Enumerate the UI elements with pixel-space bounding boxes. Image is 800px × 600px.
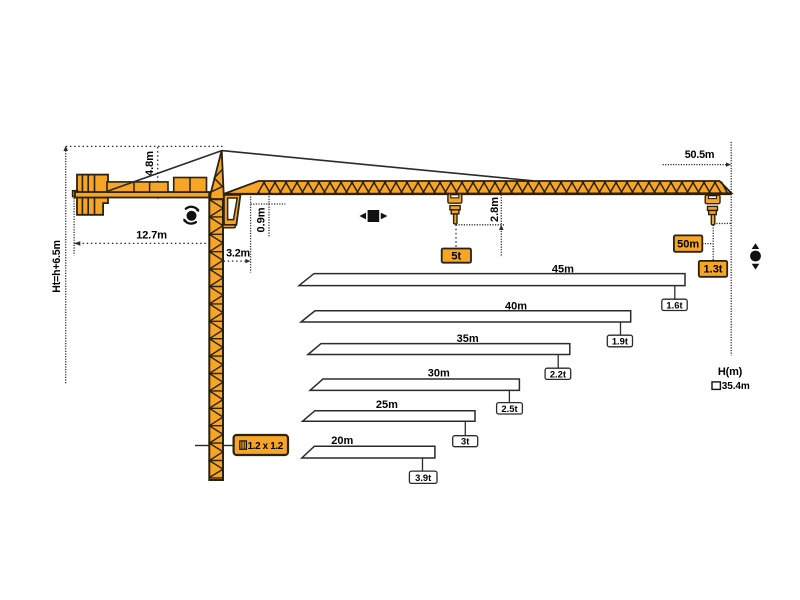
svg-text:1.3t: 1.3t (704, 264, 723, 276)
svg-text:20m: 20m (331, 435, 353, 447)
svg-text:3.2m: 3.2m (226, 248, 250, 260)
svg-text:50.5m: 50.5m (685, 149, 715, 161)
svg-text:4.8m: 4.8m (144, 151, 156, 176)
svg-text:2.8m: 2.8m (489, 197, 501, 222)
svg-text:5t: 5t (451, 251, 461, 263)
svg-text:35.4m: 35.4m (722, 381, 750, 392)
svg-text:40m: 40m (505, 300, 527, 312)
svg-text:Ht=h+6.5m: Ht=h+6.5m (51, 240, 63, 292)
svg-text:3.9t: 3.9t (415, 472, 431, 483)
svg-text:1.6t: 1.6t (666, 299, 682, 310)
svg-text:2.2t: 2.2t (550, 368, 566, 379)
svg-text:3t: 3t (461, 436, 469, 447)
svg-text:2.5t: 2.5t (501, 403, 517, 414)
svg-text:35m: 35m (457, 333, 479, 345)
svg-text:H(m): H(m) (718, 366, 743, 378)
svg-text:0.9m: 0.9m (255, 207, 267, 232)
svg-text:25m: 25m (376, 399, 398, 411)
svg-text:30m: 30m (428, 368, 450, 380)
svg-text:1.9t: 1.9t (612, 336, 628, 347)
svg-text:1.2 x 1.2: 1.2 x 1.2 (248, 441, 284, 452)
svg-text:50m: 50m (677, 238, 699, 250)
svg-text:45m: 45m (552, 263, 574, 275)
svg-text:12.7m: 12.7m (136, 230, 167, 242)
